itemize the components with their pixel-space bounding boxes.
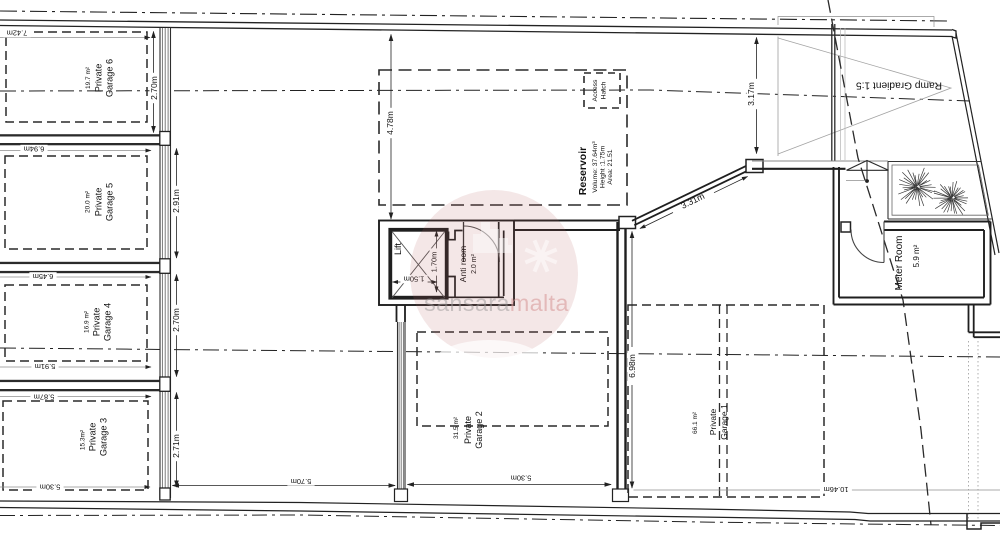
svg-text:Garage 1: Garage 1 bbox=[719, 404, 729, 440]
svg-text:4.78m: 4.78m bbox=[385, 111, 395, 135]
svg-text:Meter Room: Meter Room bbox=[894, 235, 905, 290]
svg-text:5.30m: 5.30m bbox=[40, 482, 61, 491]
svg-text:Reservoir: Reservoir bbox=[577, 147, 589, 195]
svg-text:6.98m: 6.98m bbox=[627, 354, 637, 378]
svg-text:Private: Private bbox=[92, 308, 102, 337]
svg-text:Garage 3: Garage 3 bbox=[99, 418, 109, 456]
svg-text:Private: Private bbox=[94, 188, 104, 217]
svg-text:Height :1.75m: Height :1.75m bbox=[600, 146, 607, 189]
svg-text:10.46m: 10.46m bbox=[823, 485, 848, 494]
svg-text:5.9 m²: 5.9 m² bbox=[912, 244, 921, 267]
svg-text:6.45m: 6.45m bbox=[33, 272, 54, 281]
svg-text:2.70m: 2.70m bbox=[149, 76, 159, 100]
svg-text:Lift: Lift bbox=[393, 243, 403, 256]
svg-text:Volume: 37.64m³: Volume: 37.64m³ bbox=[592, 141, 599, 193]
svg-text:Area: 21.51: Area: 21.51 bbox=[607, 149, 614, 184]
svg-text:19.7 m²: 19.7 m² bbox=[85, 66, 92, 89]
svg-text:Garage 4: Garage 4 bbox=[103, 303, 113, 341]
svg-text:7.42m: 7.42m bbox=[7, 28, 28, 37]
svg-text:66.1 m²: 66.1 m² bbox=[692, 411, 699, 434]
svg-text:Garage 5: Garage 5 bbox=[105, 183, 115, 221]
svg-text:5.87m: 5.87m bbox=[34, 392, 55, 401]
svg-text:Garage 6: Garage 6 bbox=[105, 59, 115, 97]
svg-text:Ramp Gradient 1:5: Ramp Gradient 1:5 bbox=[856, 80, 942, 91]
svg-text:3.17m: 3.17m bbox=[746, 82, 756, 106]
svg-text:sansaramalta: sansaramalta bbox=[424, 290, 569, 316]
svg-text:15.3m²: 15.3m² bbox=[80, 429, 87, 450]
svg-text:6.94m: 6.94m bbox=[24, 144, 45, 153]
svg-text:2.71m: 2.71m bbox=[171, 434, 181, 458]
svg-text:Private: Private bbox=[94, 64, 104, 93]
svg-text:Access: Access bbox=[592, 79, 599, 102]
svg-text:5.30m: 5.30m bbox=[511, 473, 532, 482]
svg-text:20.0 m²: 20.0 m² bbox=[85, 190, 92, 213]
svg-text:2.91m: 2.91m bbox=[171, 189, 181, 213]
svg-text:5.70m: 5.70m bbox=[291, 477, 312, 486]
svg-text:Private: Private bbox=[708, 409, 718, 436]
svg-text:Private: Private bbox=[88, 423, 98, 452]
svg-text:31.5 m²: 31.5 m² bbox=[453, 416, 460, 439]
svg-text:Private: Private bbox=[463, 416, 473, 444]
svg-text:2.70m: 2.70m bbox=[171, 308, 181, 332]
svg-text:5.91m: 5.91m bbox=[35, 362, 56, 371]
svg-text:Hatch: Hatch bbox=[601, 81, 608, 99]
svg-text:Garage 2: Garage 2 bbox=[474, 411, 484, 449]
svg-text:16.9 m²: 16.9 m² bbox=[84, 310, 91, 333]
